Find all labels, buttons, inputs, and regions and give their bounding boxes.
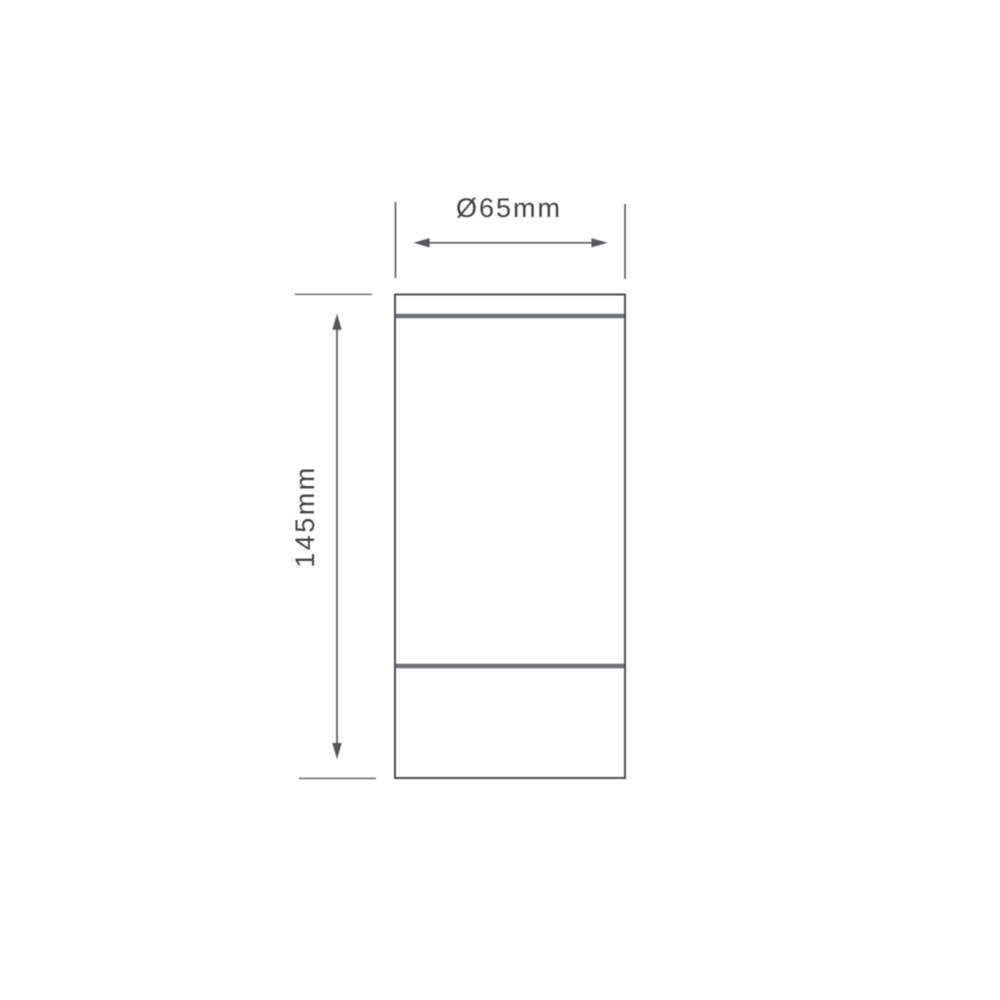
svg-text:145mm: 145mm — [290, 465, 320, 568]
svg-text:Ø65mm: Ø65mm — [456, 193, 562, 223]
